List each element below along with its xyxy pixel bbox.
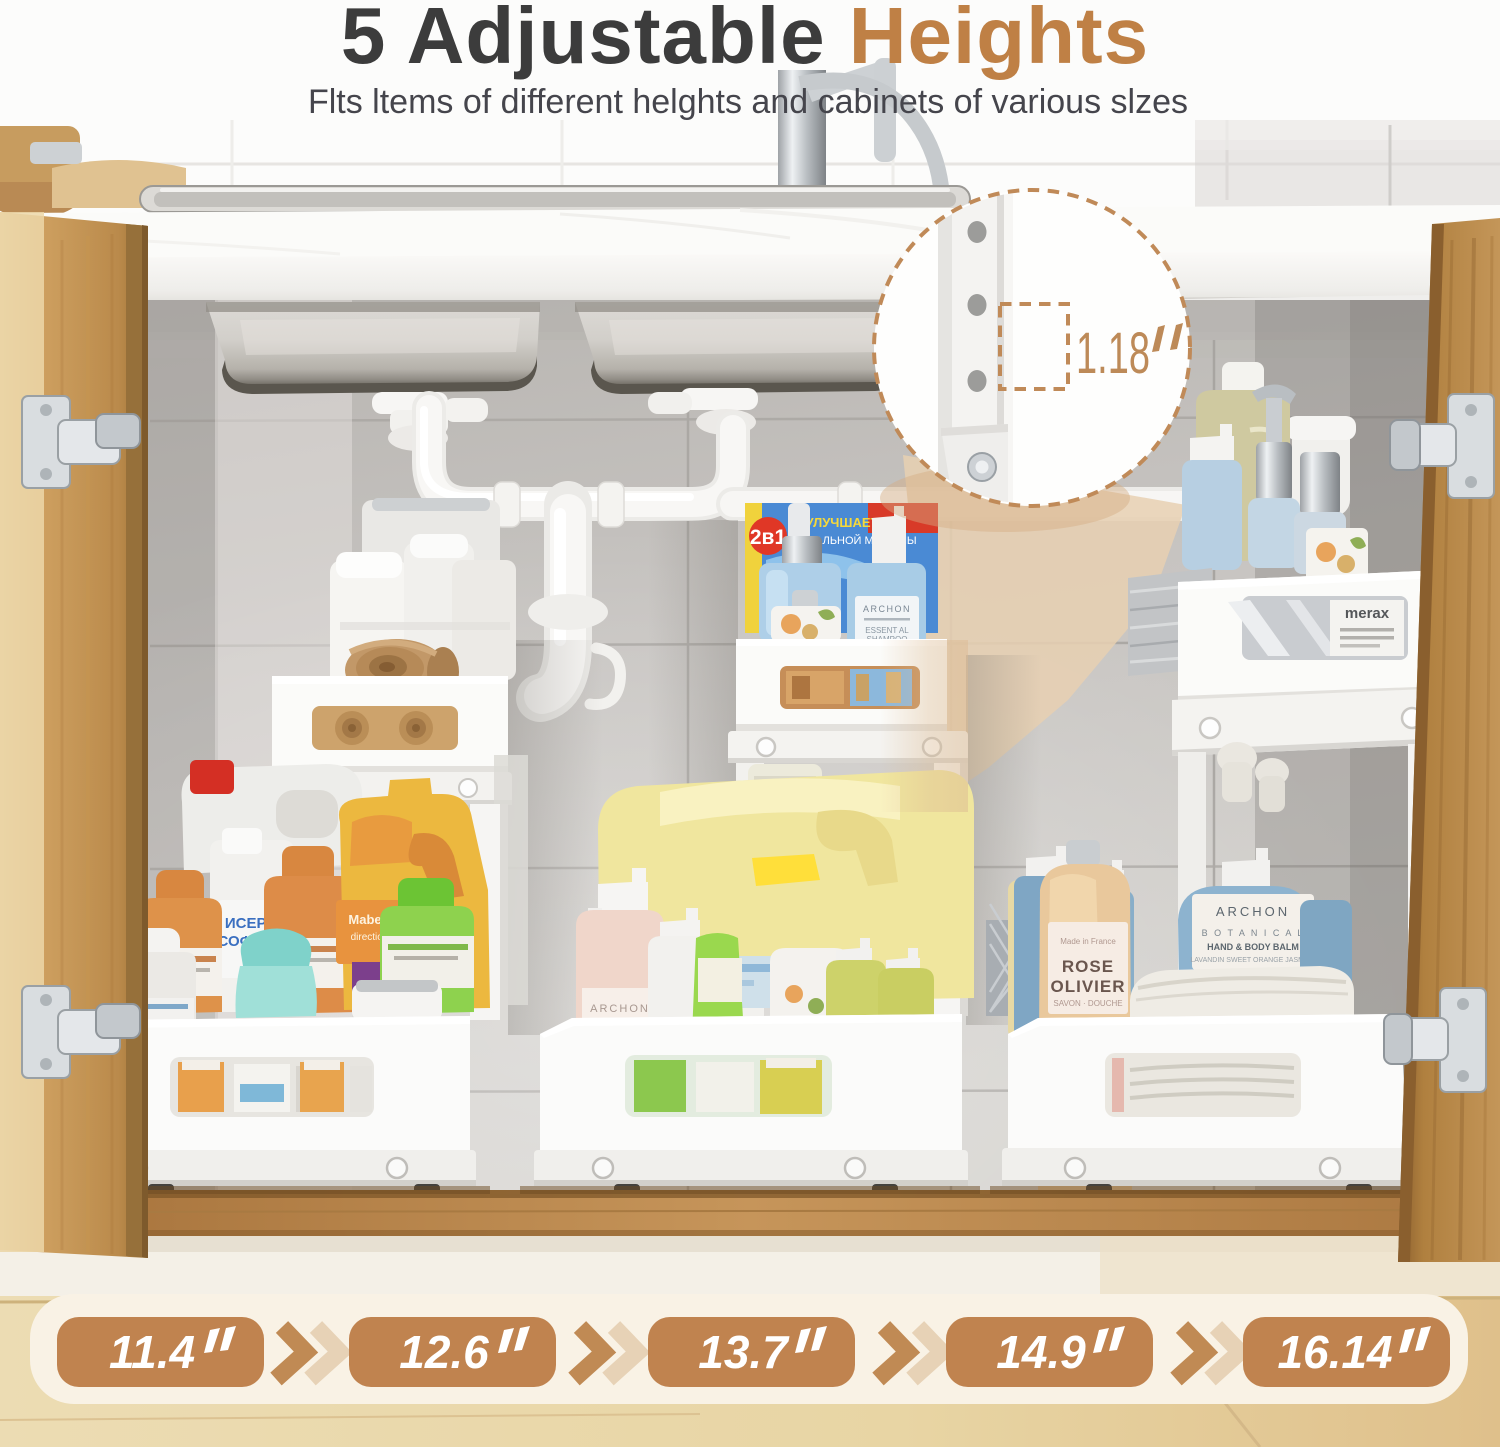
svg-text:ARCHON: ARCHON xyxy=(1216,904,1290,919)
svg-text:OLIVIER: OLIVIER xyxy=(1050,977,1125,996)
svg-text:УЛУЧШАЕТ: УЛУЧШАЕТ xyxy=(806,515,879,530)
svg-text:14.9: 14.9 xyxy=(996,1326,1086,1378)
svg-text:LAVANDIN SWEET ORANGE JASMINE: LAVANDIN SWEET ORANGE JASMINE xyxy=(1190,957,1316,964)
svg-text:ROSE: ROSE xyxy=(1062,957,1114,976)
svg-text:16.14: 16.14 xyxy=(1277,1326,1392,1378)
svg-text:ARCHON: ARCHON xyxy=(863,604,911,614)
svg-text:SAVON · DOUCHE: SAVON · DOUCHE xyxy=(1053,999,1122,1008)
svg-text:Made in France: Made in France xyxy=(1060,937,1116,946)
svg-text:Flts ltems of different helght: Flts ltems of different helghts and cabi… xyxy=(308,83,1188,121)
svg-text:1.18: 1.18 xyxy=(1076,321,1150,386)
svg-text:2в1: 2в1 xyxy=(750,526,787,549)
svg-text:13.7: 13.7 xyxy=(698,1326,790,1378)
svg-text:11.4: 11.4 xyxy=(109,1326,195,1378)
svg-text:5 Adjustable Heights: 5 Adjustable Heights xyxy=(341,0,1149,80)
svg-text:ESSENT AL: ESSENT AL xyxy=(865,626,909,635)
svg-text:merax: merax xyxy=(1345,605,1390,622)
svg-text:B O T A N I C A L: B O T A N I C A L xyxy=(1202,928,1305,938)
svg-text:12.6: 12.6 xyxy=(399,1326,489,1378)
svg-text:HAND & BODY BALM: HAND & BODY BALM xyxy=(1207,942,1299,952)
svg-text:ARCHON: ARCHON xyxy=(590,1003,650,1015)
